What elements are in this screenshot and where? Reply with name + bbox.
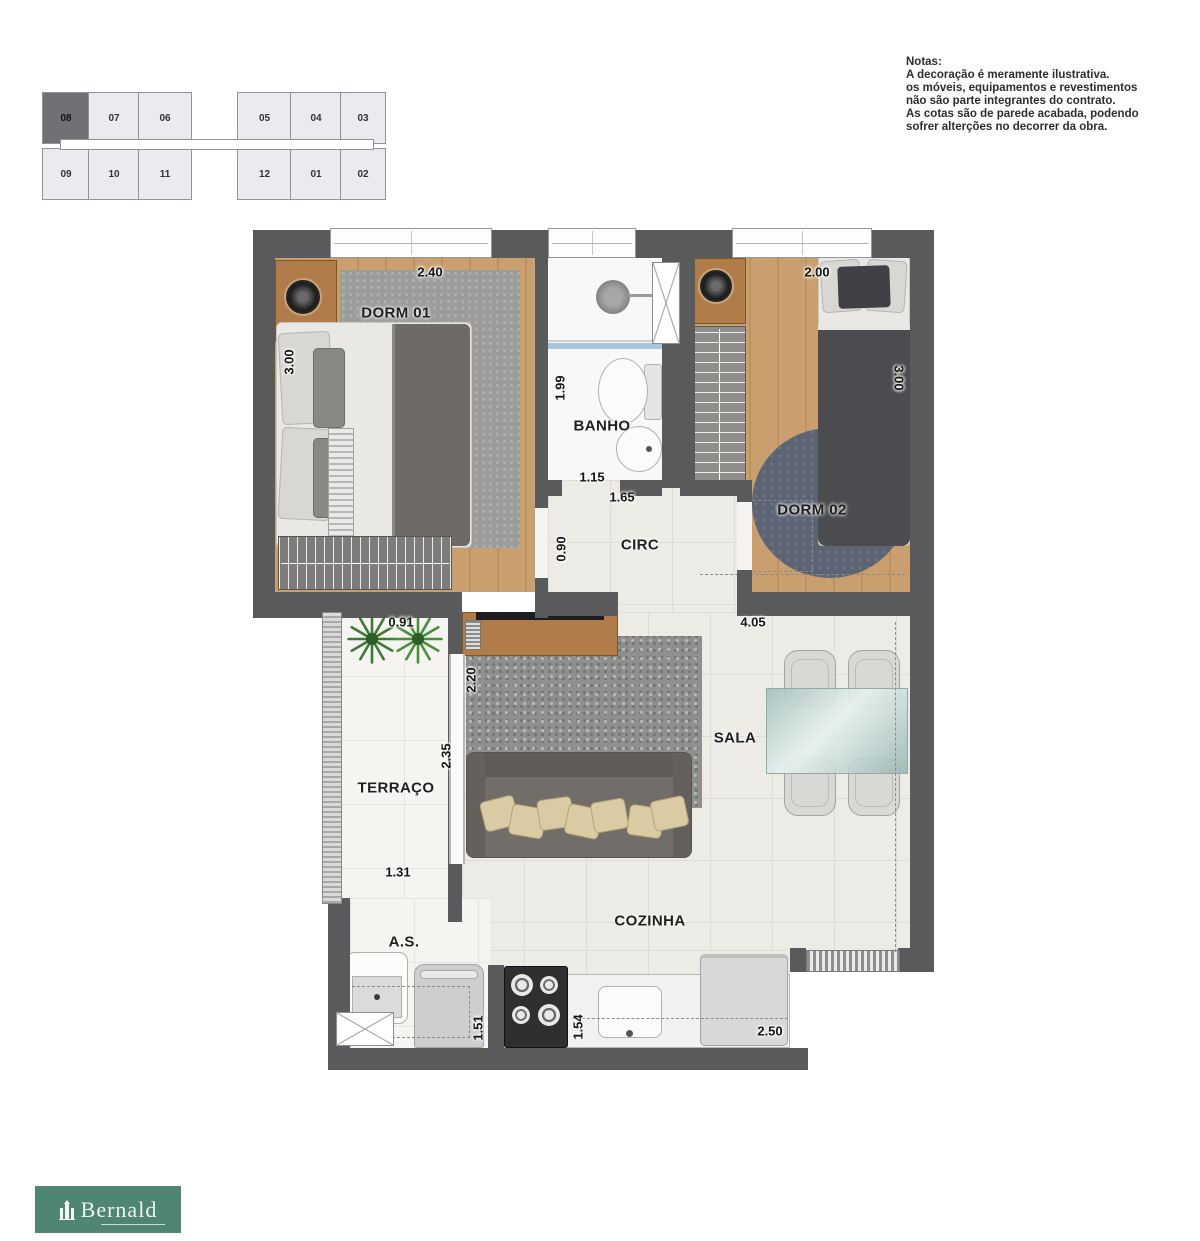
toilet-bowl xyxy=(598,358,648,424)
stove-burner-icon xyxy=(540,976,558,994)
key-plan-unit-03: 03 xyxy=(340,92,386,144)
brand-tagline-rule xyxy=(101,1224,165,1225)
dorm1-window xyxy=(330,228,492,258)
unit-number: 04 xyxy=(310,113,321,124)
key-plan-unit-10: 10 xyxy=(88,148,140,200)
banho-shaft xyxy=(652,262,680,344)
unit-number: 11 xyxy=(160,169,171,180)
key-plan-unit-05: 05 xyxy=(237,92,292,144)
wall-mid-left xyxy=(253,592,462,618)
wall-dorm1-banho xyxy=(535,256,548,508)
dorm2-window xyxy=(732,228,872,258)
dim-dorm1-depth: 3.00 xyxy=(282,349,297,374)
circ-label: CIRC xyxy=(621,537,659,554)
dorm2-pillow-dark xyxy=(837,265,890,309)
key-plan-unit-11: 11 xyxy=(138,148,192,200)
notes-line: sofrer alterções no decorrer da obra. xyxy=(906,121,1176,134)
unit-number: 07 xyxy=(108,113,119,124)
key-plan-unit-08: 08 xyxy=(42,92,90,144)
dim-banho-width: 1.15 xyxy=(579,470,604,485)
dim-dorm2-width: 2.00 xyxy=(804,265,829,280)
entry-door-threshold xyxy=(806,950,900,972)
key-plan-unit-12: 12 xyxy=(237,148,292,200)
unit-number: 05 xyxy=(259,113,270,124)
stove-burner-icon xyxy=(512,1006,530,1024)
unit-number: 06 xyxy=(159,113,170,124)
key-plan-unit-01: 01 xyxy=(290,148,342,200)
wall-servico-cozinha xyxy=(488,965,504,1070)
dorm1-wardrobe xyxy=(278,536,452,590)
brand-logo: Bernald xyxy=(35,1186,181,1233)
wall-dorm2-door-stub-top xyxy=(737,488,752,502)
notes-line: não são parte integrantes do contrato. xyxy=(906,95,1176,108)
floor-plan-page: 08 07 06 05 04 03 09 10 11 12 01 02 Nota… xyxy=(0,0,1200,1241)
unit-number: 01 xyxy=(310,169,321,180)
sala-dashed-line xyxy=(895,622,896,952)
dim-circ-width: 1.65 xyxy=(609,490,634,505)
wall-dorm1-banho-stub xyxy=(535,578,548,618)
banho-window xyxy=(548,228,636,258)
dim-cozinha-width: 2.50 xyxy=(757,1024,782,1039)
key-plan-corridor xyxy=(60,139,374,150)
banho-sink-drain xyxy=(646,446,652,452)
servico-label: A.S. xyxy=(389,934,420,951)
dorm1-lamp-icon xyxy=(284,278,322,316)
shower-glass xyxy=(548,343,662,349)
dorm2-door-opening xyxy=(737,502,752,570)
dim-servico-depth: 1.51 xyxy=(471,1015,486,1040)
notes-title: Notas: xyxy=(906,56,1176,69)
shower-divider xyxy=(548,340,662,342)
wall-banho-bottom-left xyxy=(548,480,562,496)
dim-cozinha-counter: 1.54 xyxy=(571,1014,586,1039)
terraco-label: TERRAÇO xyxy=(358,780,435,797)
dorm1-door-opening xyxy=(535,508,548,578)
dorm1-label: DORM 01 xyxy=(361,305,430,322)
sofa-back xyxy=(467,753,691,777)
cozinha-label: COZINHA xyxy=(614,913,685,930)
dim-dorm1-width: 2.40 xyxy=(417,265,442,280)
stove-burner-icon xyxy=(511,974,533,996)
sala-label: SALA xyxy=(714,730,756,747)
notes-line: As cotas são de parede acabada, podendo xyxy=(906,108,1176,121)
wall-mid-circ xyxy=(548,592,618,616)
key-plan: 08 07 06 05 04 03 09 10 11 12 01 02 xyxy=(0,0,420,220)
tv-speaker-icon xyxy=(465,620,481,650)
key-plan-unit-06: 06 xyxy=(138,92,192,144)
unit-number: 08 xyxy=(60,113,71,124)
notes-line: A decoração é meramente ilustrativa. xyxy=(906,69,1176,82)
wall-right-lower xyxy=(910,612,934,972)
terraco-railing xyxy=(322,612,342,904)
wall-right-upper xyxy=(910,230,934,618)
dorm2-lamp-icon xyxy=(698,268,734,304)
kitchen-dashed-line xyxy=(572,1018,788,1019)
dorm2-wardrobe xyxy=(692,326,746,484)
unit-number: 02 xyxy=(357,169,368,180)
wall-bottom xyxy=(328,1048,808,1070)
key-plan-unit-02: 02 xyxy=(340,148,386,200)
notes-line: os móveis, equipamentos e revestimentos xyxy=(906,82,1176,95)
dim-dorm2-depth: 3.00 xyxy=(892,365,907,390)
stove-burner-icon xyxy=(538,1004,560,1026)
dim-terraco-depth: 2.35 xyxy=(439,743,454,768)
sofa-pillow xyxy=(590,797,630,834)
dim-sala-tv: 2.20 xyxy=(464,667,479,692)
servico-shaft xyxy=(336,1012,394,1046)
dorm1-bed-runner xyxy=(328,428,354,542)
washing-machine-lid xyxy=(420,970,478,979)
building-icon xyxy=(59,1200,75,1220)
unit-number: 12 xyxy=(259,169,270,180)
dining-table xyxy=(766,688,908,774)
kitchen-faucet-icon xyxy=(626,1030,633,1037)
dorm2-label: DORM 02 xyxy=(777,502,846,519)
key-plan-unit-07: 07 xyxy=(88,92,140,144)
wall-entry-left xyxy=(790,948,806,972)
dorm1-blanket xyxy=(392,324,470,546)
dim-terraco-top: 0.91 xyxy=(388,615,413,630)
unit-number: 10 xyxy=(108,169,119,180)
unit-number: 09 xyxy=(60,169,71,180)
key-plan-unit-04: 04 xyxy=(290,92,342,144)
shower-head-icon xyxy=(596,280,630,314)
brand-name: Bernald xyxy=(81,1197,158,1223)
dorm2-dashed-line xyxy=(700,574,905,575)
wall-left-upper xyxy=(253,230,275,618)
dim-terraco-bottom: 1.31 xyxy=(385,865,410,880)
unit-number: 03 xyxy=(357,113,368,124)
banho-label: BANHO xyxy=(574,418,631,435)
notes-block: Notas: A decoração é meramente ilustrati… xyxy=(906,56,1176,133)
dim-sala-width: 4.05 xyxy=(740,615,765,630)
dim-circ-depth: 0.90 xyxy=(554,536,569,561)
dorm1-pillow-dark xyxy=(313,348,345,428)
wall-mid-right xyxy=(750,592,934,616)
dim-banho-depth: 1.99 xyxy=(553,375,568,400)
key-plan-unit-09: 09 xyxy=(42,148,90,200)
